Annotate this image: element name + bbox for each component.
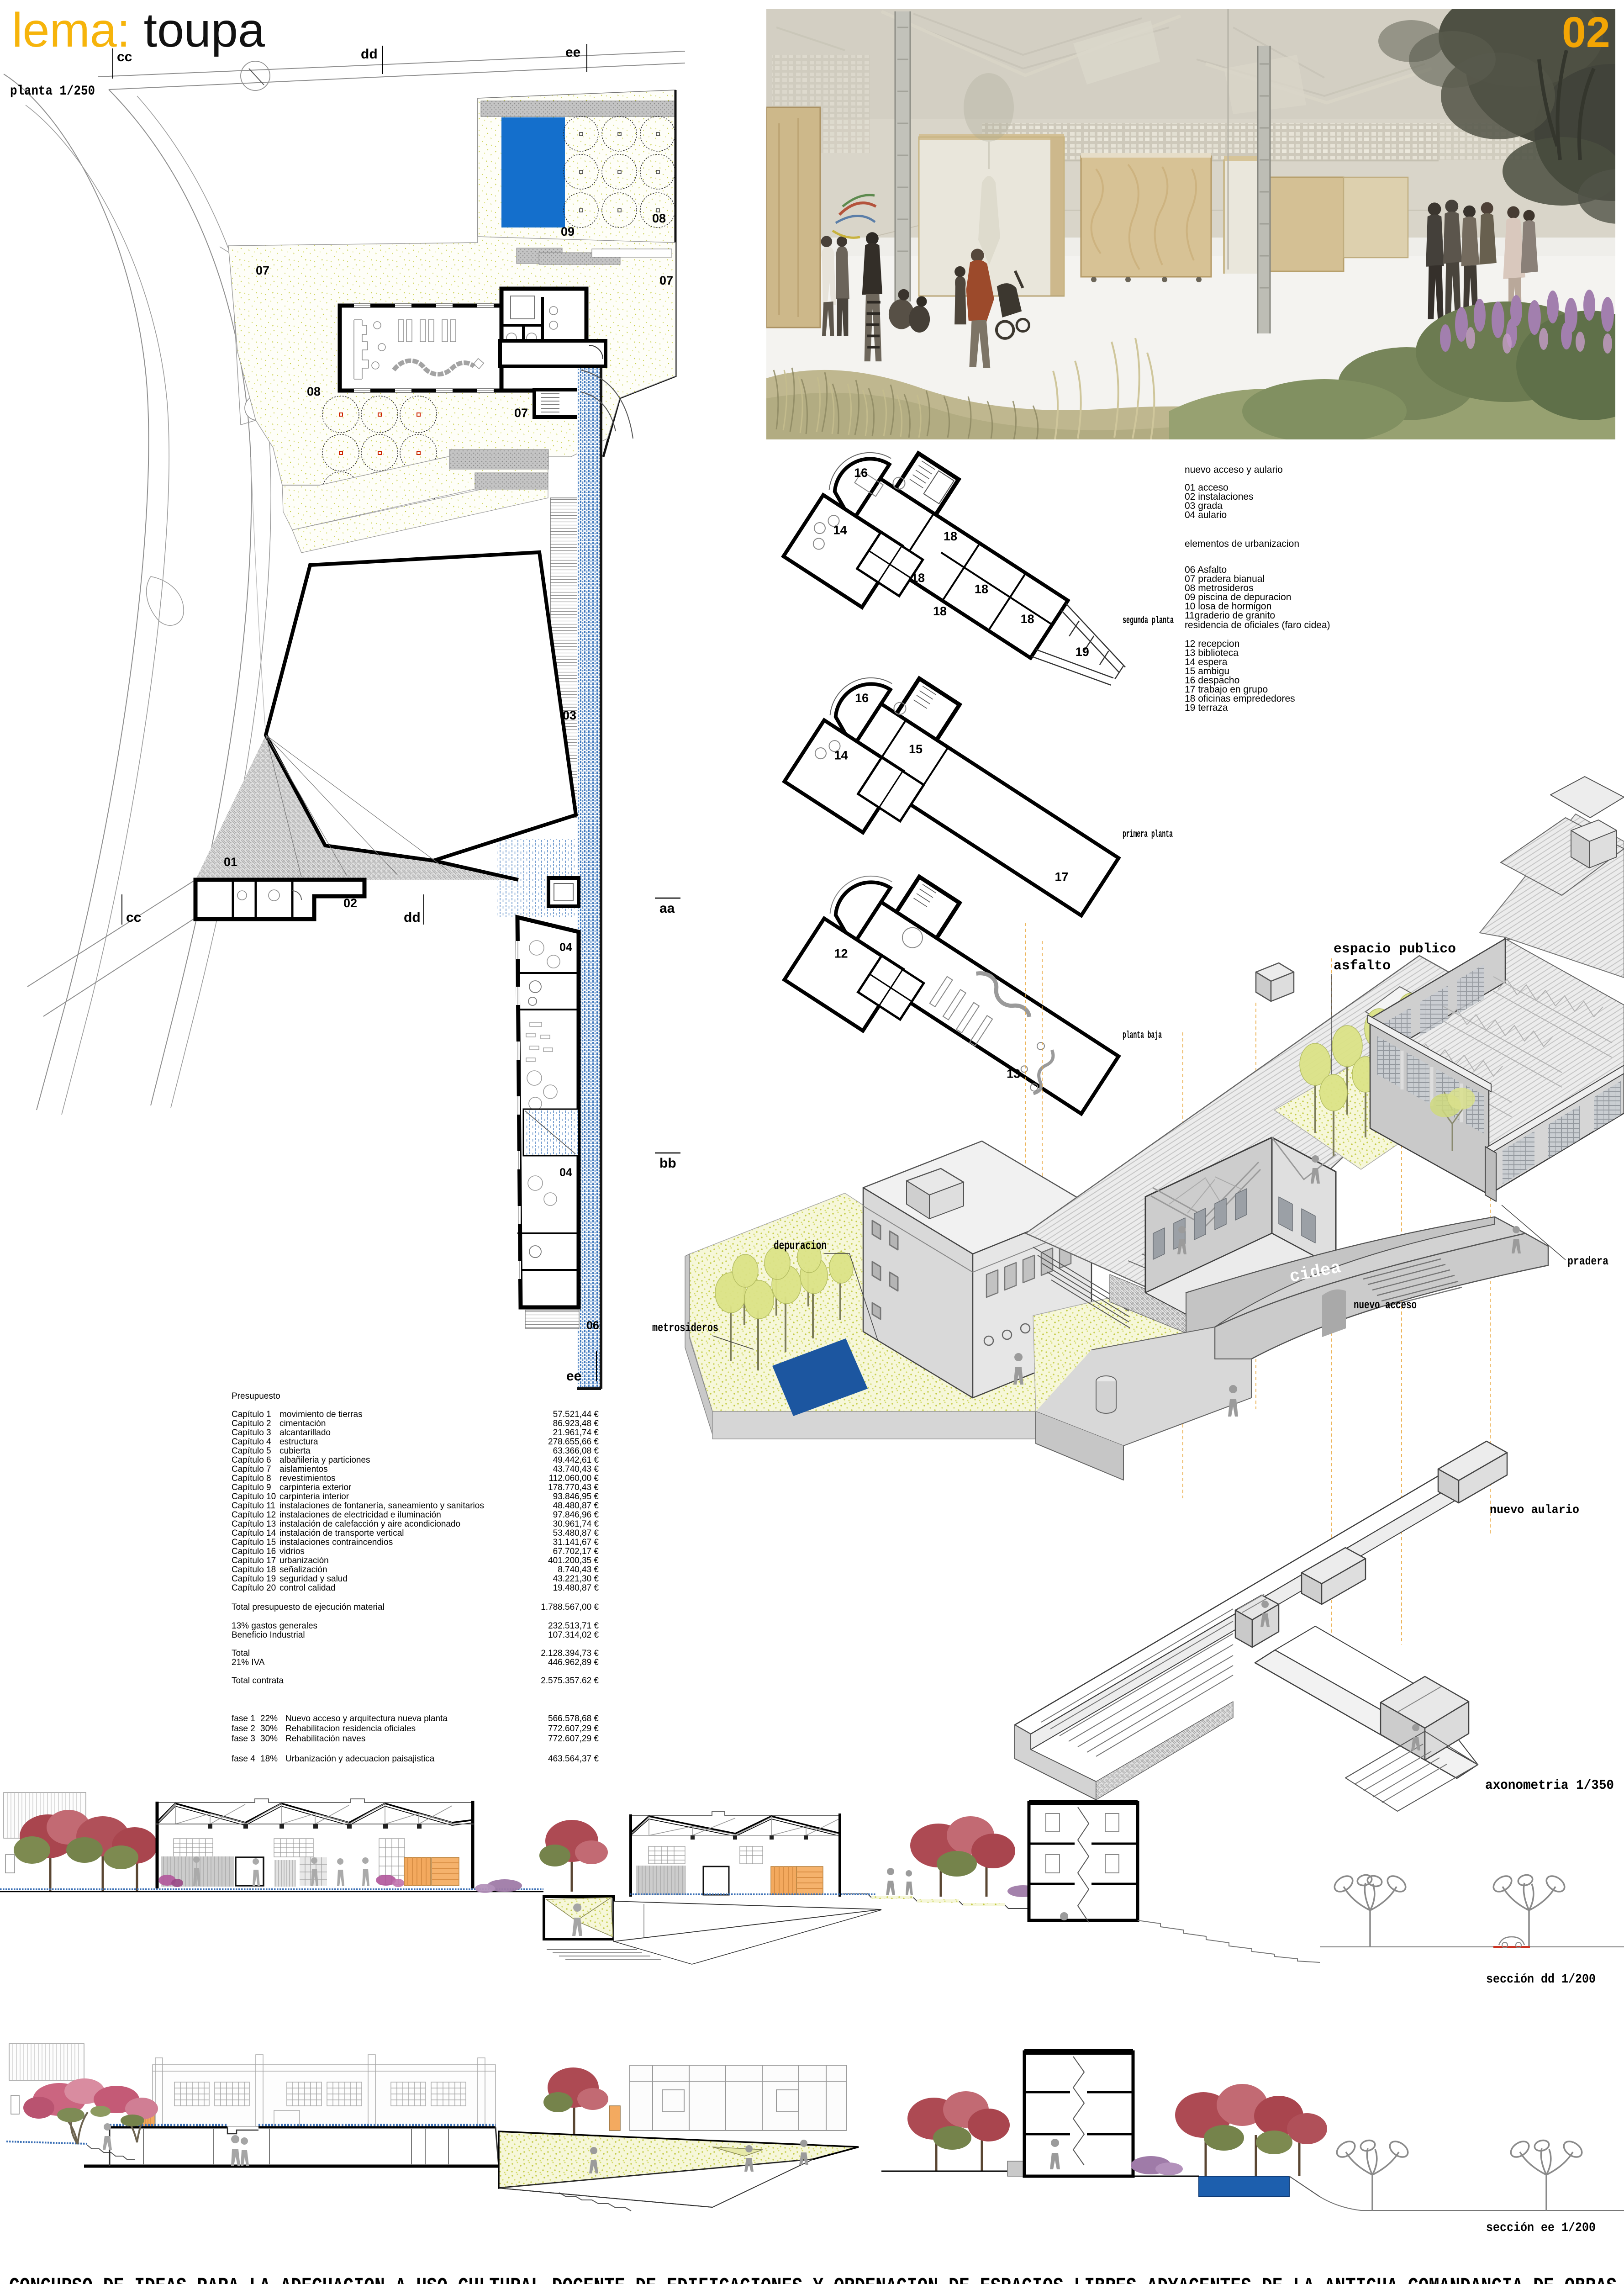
svg-text:sección ee 1/200: sección ee 1/200 xyxy=(1486,2221,1596,2235)
svg-text:Capítulo 4: Capítulo 4 xyxy=(232,1437,271,1447)
svg-text:Capítulo 7: Capítulo 7 xyxy=(232,1465,271,1474)
svg-text:22%: 22% xyxy=(260,1714,278,1724)
svg-text:48.480,87 €: 48.480,87 € xyxy=(553,1501,599,1511)
svg-text:2.575.357.62 €: 2.575.357.62 € xyxy=(541,1676,599,1686)
svg-text:aa: aa xyxy=(659,901,675,916)
svg-text:57.521,44 €: 57.521,44 € xyxy=(553,1410,599,1419)
svg-text:1.788.567,00 €: 1.788.567,00 € xyxy=(541,1602,599,1612)
svg-text:2.128.394,73 €: 2.128.394,73 € xyxy=(541,1649,599,1658)
svg-text:21.961,74 €: 21.961,74 € xyxy=(553,1428,599,1438)
svg-text:CONCURSO DE IDEAS PARA LA ADEC: CONCURSO DE IDEAS PARA LA ADECUACION A U… xyxy=(9,2275,1617,2284)
svg-text:fase 3: fase 3 xyxy=(232,1734,255,1744)
svg-text:bb: bb xyxy=(659,1156,676,1171)
svg-text:carpinteria interior: carpinteria interior xyxy=(279,1492,349,1502)
svg-text:13: 13 xyxy=(1007,1067,1020,1080)
svg-text:Capítulo 20: Capítulo 20 xyxy=(232,1583,276,1593)
svg-text:instalación de transporte vert: instalación de transporte vertical xyxy=(279,1528,404,1538)
svg-text:Beneficio Industrial: Beneficio Industrial xyxy=(232,1630,305,1640)
svg-text:metrosideros: metrosideros xyxy=(652,1321,718,1335)
svg-text:dd: dd xyxy=(404,910,421,925)
svg-text:Capítulo 19: Capítulo 19 xyxy=(232,1574,276,1584)
svg-text:urbanización: urbanización xyxy=(279,1556,329,1565)
svg-text:dd: dd xyxy=(361,47,378,62)
svg-text:cimentación: cimentación xyxy=(279,1419,326,1428)
svg-text:43.221,30 €: 43.221,30 € xyxy=(553,1574,599,1584)
svg-text:espacio publico: espacio publico xyxy=(1334,941,1456,957)
svg-text:instalaciones de fontanería, s: instalaciones de fontanería, saneamiento… xyxy=(279,1501,484,1511)
svg-text:Capítulo 1: Capítulo 1 xyxy=(232,1410,271,1419)
svg-text:señalización: señalización xyxy=(279,1565,327,1575)
svg-text:12: 12 xyxy=(834,946,848,960)
svg-text:Capítulo 10: Capítulo 10 xyxy=(232,1492,276,1502)
svg-text:estructura: estructura xyxy=(279,1437,318,1447)
svg-text:Rehabilitación naves: Rehabilitación naves xyxy=(285,1734,365,1744)
svg-text:06: 06 xyxy=(586,1319,599,1332)
svg-text:primera planta: primera planta xyxy=(1123,829,1173,840)
svg-text:112.060,00 €: 112.060,00 € xyxy=(548,1474,599,1483)
svg-text:depuracion: depuracion xyxy=(774,1239,827,1253)
svg-text:nuevo aulario: nuevo aulario xyxy=(1490,1503,1579,1517)
svg-text:Capítulo 15: Capítulo 15 xyxy=(232,1538,276,1547)
svg-text:cc: cc xyxy=(126,910,141,925)
svg-text:Total: Total xyxy=(232,1649,250,1658)
svg-text:232.513,71 €: 232.513,71 € xyxy=(548,1621,599,1631)
svg-text:04 aulario: 04 aulario xyxy=(1185,510,1227,520)
svg-text:Capítulo 17: Capítulo 17 xyxy=(232,1556,276,1565)
svg-text:vidrios: vidrios xyxy=(279,1547,305,1556)
svg-text:planta 1/250: planta 1/250 xyxy=(10,84,95,99)
svg-text:instalaciones contraincendios: instalaciones contraincendios xyxy=(279,1538,393,1547)
svg-text:pradera: pradera xyxy=(1567,1254,1608,1268)
svg-text:08: 08 xyxy=(307,385,321,398)
svg-text:fase 2: fase 2 xyxy=(232,1724,255,1734)
svg-text:albañileria y particiones: albañileria y particiones xyxy=(279,1455,370,1465)
svg-text:instalación de calefacción y a: instalación de calefacción y aire acondi… xyxy=(279,1519,460,1529)
svg-text:Capítulo 13: Capítulo 13 xyxy=(232,1519,276,1529)
svg-text:movimiento de tierras: movimiento de tierras xyxy=(279,1410,363,1419)
svg-text:566.578,68 €: 566.578,68 € xyxy=(548,1714,599,1724)
svg-text:97.846,96 €: 97.846,96 € xyxy=(553,1510,599,1520)
svg-text:18: 18 xyxy=(911,571,925,585)
svg-text:Capítulo 14: Capítulo 14 xyxy=(232,1528,276,1538)
svg-text:lema: toupa: lema: toupa xyxy=(12,3,265,57)
svg-text:Capítulo 2: Capítulo 2 xyxy=(232,1419,271,1428)
svg-text:31.141,67 €: 31.141,67 € xyxy=(553,1538,599,1547)
svg-text:15: 15 xyxy=(909,742,923,756)
svg-text:fase 4: fase 4 xyxy=(232,1754,255,1764)
svg-text:14: 14 xyxy=(833,523,847,537)
svg-text:772.607,29 €: 772.607,29 € xyxy=(548,1724,599,1734)
svg-text:ee: ee xyxy=(566,1369,581,1384)
svg-text:16: 16 xyxy=(855,691,869,705)
svg-text:Capítulo 18: Capítulo 18 xyxy=(232,1565,276,1575)
svg-text:alcantarillado: alcantarillado xyxy=(279,1428,331,1438)
svg-text:463.564,37 €: 463.564,37 € xyxy=(548,1754,599,1764)
svg-text:asfalto: asfalto xyxy=(1334,958,1391,974)
svg-text:07: 07 xyxy=(256,264,269,277)
svg-text:fase 1: fase 1 xyxy=(232,1714,255,1724)
svg-text:Rehabilitacion residencia ofic: Rehabilitacion residencia oficiales xyxy=(285,1724,416,1734)
svg-text:Capítulo 9: Capítulo 9 xyxy=(232,1483,271,1492)
svg-text:nuevo acceso y aulario: nuevo acceso y aulario xyxy=(1185,465,1283,475)
svg-text:control calidad: control calidad xyxy=(279,1583,336,1593)
svg-text:elementos de urbanizacion: elementos de urbanizacion xyxy=(1185,539,1299,549)
svg-text:Nuevo acceso y arquitectura nu: Nuevo acceso y arquitectura nueva planta xyxy=(285,1714,448,1724)
svg-text:86.923,48 €: 86.923,48 € xyxy=(553,1419,599,1428)
svg-text:axonometria 1/350: axonometria 1/350 xyxy=(1485,1778,1614,1793)
svg-text:19.480,87 €: 19.480,87 € xyxy=(553,1583,599,1593)
svg-text:8.740,43 €: 8.740,43 € xyxy=(558,1565,599,1575)
svg-text:17: 17 xyxy=(1055,870,1069,883)
svg-text:18: 18 xyxy=(975,582,988,596)
svg-text:revestimientos: revestimientos xyxy=(279,1474,336,1483)
svg-text:Capítulo 6: Capítulo 6 xyxy=(232,1455,271,1465)
svg-text:Capítulo 11: Capítulo 11 xyxy=(232,1501,275,1511)
svg-text:04: 04 xyxy=(559,1166,572,1179)
svg-text:07: 07 xyxy=(659,274,673,287)
svg-text:18%: 18% xyxy=(260,1754,278,1764)
svg-text:carpinteria exterior: carpinteria exterior xyxy=(279,1483,352,1492)
svg-text:seguridad y salud: seguridad y salud xyxy=(279,1574,348,1584)
svg-text:planta baja: planta baja xyxy=(1123,1030,1162,1041)
svg-text:18: 18 xyxy=(933,604,947,618)
svg-text:18: 18 xyxy=(944,529,957,543)
svg-text:Capítulo 16: Capítulo 16 xyxy=(232,1547,276,1556)
svg-text:19 terraza: 19 terraza xyxy=(1185,703,1228,713)
svg-text:Capítulo 3: Capítulo 3 xyxy=(232,1428,271,1438)
svg-text:01: 01 xyxy=(224,855,237,869)
svg-text:53.480,87 €: 53.480,87 € xyxy=(553,1528,599,1538)
svg-text:09: 09 xyxy=(561,225,575,238)
svg-text:43.740,43 €: 43.740,43 € xyxy=(553,1465,599,1474)
svg-text:03: 03 xyxy=(563,708,576,722)
svg-text:178.770,43 €: 178.770,43 € xyxy=(548,1483,599,1492)
svg-text:08: 08 xyxy=(652,211,666,225)
svg-text:02: 02 xyxy=(343,896,357,910)
svg-text:446.962,89 €: 446.962,89 € xyxy=(548,1658,599,1667)
svg-text:107.314,02 €: 107.314,02 € xyxy=(548,1630,599,1640)
svg-text:02: 02 xyxy=(1562,8,1610,57)
svg-text:residencia de oficiales (faro: residencia de oficiales (faro cidea) xyxy=(1185,620,1330,630)
svg-text:401.200,35 €: 401.200,35 € xyxy=(548,1556,599,1565)
svg-text:21% IVA: 21% IVA xyxy=(232,1658,265,1667)
svg-text:13% gastos generales: 13% gastos generales xyxy=(232,1621,317,1631)
svg-text:Capítulo 12: Capítulo 12 xyxy=(232,1510,276,1520)
svg-text:772.607,29 €: 772.607,29 € xyxy=(548,1734,599,1744)
svg-text:18: 18 xyxy=(1021,612,1034,626)
svg-text:63.366,08 €: 63.366,08 € xyxy=(553,1446,599,1456)
svg-text:ee: ee xyxy=(565,45,580,60)
svg-text:07: 07 xyxy=(514,406,528,420)
svg-text:Capítulo 8: Capítulo 8 xyxy=(232,1474,271,1483)
svg-text:aislamientos: aislamientos xyxy=(279,1465,328,1474)
svg-text:16: 16 xyxy=(854,466,868,480)
svg-text:14: 14 xyxy=(834,748,848,762)
svg-text:Presupuesto: Presupuesto xyxy=(232,1391,280,1401)
svg-text:segunda planta: segunda planta xyxy=(1123,615,1174,626)
svg-text:sección dd 1/200: sección dd 1/200 xyxy=(1486,1972,1596,1987)
svg-text:30.961,74 €: 30.961,74 € xyxy=(553,1519,599,1529)
svg-text:67.702,17 €: 67.702,17 € xyxy=(553,1547,599,1556)
svg-text:11graderio de granito: 11graderio de granito xyxy=(1185,610,1275,621)
svg-text:04: 04 xyxy=(559,941,572,954)
svg-text:Total presupuesto de ejecución: Total presupuesto de ejecución material xyxy=(232,1602,385,1612)
svg-text:Capítulo 5: Capítulo 5 xyxy=(232,1446,271,1456)
svg-text:278.655,66 €: 278.655,66 € xyxy=(548,1437,599,1447)
svg-text:nuevo acceso: nuevo acceso xyxy=(1354,1298,1417,1312)
svg-text:93.846,95 €: 93.846,95 € xyxy=(553,1492,599,1502)
svg-text:49.442,61 €: 49.442,61 € xyxy=(553,1455,599,1465)
svg-text:Total contrata: Total contrata xyxy=(232,1676,284,1686)
svg-text:Urbanización y adecuacion pais: Urbanización y adecuacion paisajistica xyxy=(285,1754,435,1764)
svg-text:30%: 30% xyxy=(260,1724,278,1734)
svg-text:cubierta: cubierta xyxy=(279,1446,311,1456)
svg-text:19: 19 xyxy=(1076,645,1089,659)
svg-text:30%: 30% xyxy=(260,1734,278,1744)
svg-text:instalaciones de electricidad: instalaciones de electricidad e iluminac… xyxy=(279,1510,441,1520)
